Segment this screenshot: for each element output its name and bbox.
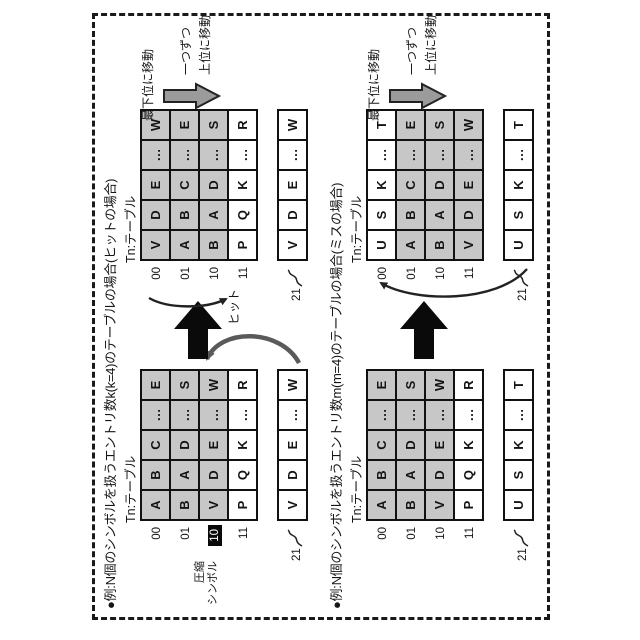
table-name-label: Tn:テーブル <box>120 456 139 523</box>
leader-squiggle-icon <box>513 529 529 547</box>
table-cell: P <box>229 491 256 519</box>
row-label-text: 00 <box>377 525 389 542</box>
row-label: 01 <box>171 525 200 542</box>
register-cell: … <box>505 401 532 429</box>
register-cell: … <box>505 141 532 169</box>
register-cell: D <box>279 461 306 489</box>
move-to-lowest-label: 最下位に移動 <box>139 49 156 121</box>
table-cell: V <box>142 231 169 259</box>
table-cell: B <box>200 231 227 259</box>
table-cell: … <box>455 401 482 429</box>
table-cell: … <box>142 141 169 169</box>
move-up-line2: 上位に移動 <box>196 15 215 75</box>
row-label-text: 00 <box>151 525 163 542</box>
move-to-lowest-label: 最下位に移動 <box>365 49 382 121</box>
register-ref-label: 21 <box>513 529 529 561</box>
table-cell: … <box>368 141 395 169</box>
figure-frame: ●例:N個のシンボルを扱うエントリ数k(k=4)のテーブルの場合(ヒットの場合)… <box>92 13 550 620</box>
register-cell: U <box>505 231 532 259</box>
move-up-line2: 上位に移動 <box>422 15 441 75</box>
row-label: 11 <box>229 265 258 281</box>
table-cell: V <box>426 491 453 519</box>
table-cell: D <box>397 431 424 459</box>
row-label: 01 <box>397 265 426 282</box>
register-cell: T <box>505 371 532 399</box>
table-cell: A <box>171 231 198 259</box>
register-ref-label: 21 <box>287 529 303 561</box>
row-label-text: 11 <box>238 525 250 541</box>
register-cell: D <box>279 201 306 229</box>
table-cell: D <box>200 461 227 489</box>
patent-figure-page: { "colors": { "shaded_cell": "#c7c7c7", … <box>0 0 640 640</box>
table-cell: S <box>397 371 424 399</box>
row-label-text: 00 <box>151 265 163 282</box>
table-cell: C <box>397 171 424 199</box>
row-label-text: 10 <box>435 265 447 282</box>
row-label-text: 11 <box>464 525 476 541</box>
symbol-register-before: U S K … T <box>503 369 534 521</box>
table-cell: E <box>455 171 482 199</box>
table-cell: Q <box>229 461 256 489</box>
register-cell: W <box>279 371 306 399</box>
row-label: 10 <box>426 525 455 542</box>
row-label: 01 <box>397 525 426 542</box>
row-label: 00 <box>142 525 171 542</box>
table-cell: B <box>426 231 453 259</box>
table-cell: A <box>171 461 198 489</box>
table-cell: B <box>397 491 424 519</box>
leader-squiggle-icon <box>287 529 303 547</box>
table-cell: V <box>455 231 482 259</box>
compressed-symbol-line1: 圧縮 <box>194 561 207 613</box>
table-cell: S <box>171 371 198 399</box>
table-cell: K <box>229 431 256 459</box>
register-cell: … <box>279 141 306 169</box>
table-cell: … <box>455 141 482 169</box>
table-cell: A <box>397 461 424 489</box>
compressed-symbol-label: 圧縮 シンボル <box>194 561 220 613</box>
move-up-label: 一つずつ 上位に移動 <box>403 15 441 75</box>
table-cell: D <box>455 201 482 229</box>
table-cell: D <box>426 461 453 489</box>
table-cell: K <box>229 171 256 199</box>
move-down-arrow-icon <box>163 83 221 109</box>
table-cell: W <box>455 111 482 139</box>
table-cell: … <box>368 401 395 429</box>
symbol-register-after: U S K … T <box>503 109 534 261</box>
row-label: 11 <box>229 525 258 541</box>
table-cell: … <box>200 141 227 169</box>
table-cell: E <box>200 431 227 459</box>
table-cell: D <box>171 431 198 459</box>
transform-arrow-icon <box>397 301 451 359</box>
symbol-register-after: V D E … W <box>277 109 308 261</box>
table-cell: C <box>142 431 169 459</box>
table-cell: A <box>426 201 453 229</box>
register-cell: V <box>279 491 306 519</box>
table-cell: … <box>171 141 198 169</box>
register-cell: U <box>505 491 532 519</box>
table-cell: … <box>200 401 227 429</box>
table-cell: … <box>397 401 424 429</box>
table-cell: B <box>368 461 395 489</box>
symbol-table-after: U S K … T A B C … E B A D … S V D E … W <box>366 109 484 261</box>
register-ref-number: 21 <box>291 288 303 301</box>
case-miss: ●例:N個のシンボルを扱うエントリ数m(m=4)のテーブルの場合(ミスの場合) … <box>321 16 547 617</box>
row-label-column: 00 01 10 11 <box>142 525 258 559</box>
row-label-column: 00 01 10 11 <box>368 265 484 299</box>
register-ref-number: 21 <box>517 548 529 561</box>
table-cell: R <box>455 371 482 399</box>
row-label-text: 01 <box>406 265 418 282</box>
table-cell: W <box>426 371 453 399</box>
table-cell: B <box>171 491 198 519</box>
row-label-text: 11 <box>238 265 250 281</box>
table-name-label: Tn:テーブル <box>346 196 365 263</box>
table-cell: E <box>171 111 198 139</box>
register-cell: E <box>279 431 306 459</box>
table-cell: … <box>426 141 453 169</box>
table-cell: E <box>142 371 169 399</box>
case-hit: ●例:N個のシンボルを扱うエントリ数k(k=4)のテーブルの場合(ヒットの場合)… <box>95 16 321 617</box>
table-cell: B <box>171 201 198 229</box>
table-cell: E <box>426 431 453 459</box>
row-label-column: 00 01 10 11 <box>368 525 484 559</box>
table-cell: D <box>142 201 169 229</box>
table-cell: C <box>368 431 395 459</box>
row-label-text: 11 <box>464 265 476 281</box>
table-cell: K <box>368 171 395 199</box>
table-cell: A <box>200 201 227 229</box>
move-up-line1: 一つずつ <box>177 15 196 75</box>
row-label-text: 01 <box>406 525 418 542</box>
row-label: 10 <box>200 265 229 282</box>
table-cell: R <box>229 111 256 139</box>
register-cell: K <box>505 431 532 459</box>
row-label: 01 <box>171 265 200 282</box>
table-cell: V <box>200 491 227 519</box>
table-cell: … <box>229 401 256 429</box>
table-cell: … <box>171 401 198 429</box>
register-cell: T <box>505 111 532 139</box>
register-cell: S <box>505 201 532 229</box>
table-name-label: Tn:テーブル <box>346 456 365 523</box>
row-label: 00 <box>368 525 397 542</box>
leader-squiggle-icon <box>513 269 529 287</box>
move-up-line1: 一つずつ <box>403 15 422 75</box>
register-cell: E <box>279 171 306 199</box>
table-name-label: Tn:テーブル <box>120 196 139 263</box>
table-cell: U <box>368 231 395 259</box>
table-cell: D <box>200 171 227 199</box>
row-label: 00 <box>368 265 397 282</box>
row-label-text: 10 <box>435 525 447 542</box>
row-label-text: 10 <box>209 265 221 282</box>
table-cell: S <box>368 201 395 229</box>
move-down-arrow-icon <box>389 83 447 109</box>
case-title: ●例:N個のシンボルを扱うエントリ数m(m=4)のテーブルの場合(ミスの場合) <box>326 183 345 609</box>
register-cell: V <box>279 231 306 259</box>
symbol-table-before: A B C … E B A D … S V D E … W P Q K … R <box>366 369 484 521</box>
table-cell: S <box>426 111 453 139</box>
table-cell: B <box>142 461 169 489</box>
table-cell: A <box>142 491 169 519</box>
row-label-text: 00 <box>377 265 389 282</box>
table-cell: W <box>200 371 227 399</box>
rotated-figure-wrap: ●例:N個のシンボルを扱うエントリ数k(k=4)のテーブルの場合(ヒットの場合)… <box>92 13 550 620</box>
table-cell: A <box>368 491 395 519</box>
register-ref-label: 21 <box>287 269 303 301</box>
table-cell: D <box>426 171 453 199</box>
row-label-text: 01 <box>180 525 192 542</box>
move-up-label: 一つずつ 上位に移動 <box>177 15 215 75</box>
table-cell: … <box>142 401 169 429</box>
row-label: 11 <box>455 525 484 541</box>
table-cell: S <box>200 111 227 139</box>
row-label-text: 01 <box>180 265 192 282</box>
table-cell: Q <box>455 461 482 489</box>
symbol-register-before: V D E … W <box>277 369 308 521</box>
symbol-table-after: V D E … W A B C … E B A D … S P Q K … R <box>140 109 258 261</box>
register-ref-label: 21 <box>513 269 529 301</box>
register-cell: S <box>505 461 532 489</box>
table-cell: K <box>455 431 482 459</box>
table-cell: E <box>397 111 424 139</box>
table-cell: … <box>229 141 256 169</box>
table-cell: … <box>426 401 453 429</box>
row-label-text: 10 <box>208 525 222 546</box>
table-cell: R <box>229 371 256 399</box>
row-label-highlighted: 10 <box>200 525 229 546</box>
row-label-column: 00 01 10 11 <box>142 265 258 299</box>
row-label: 10 <box>426 265 455 282</box>
leader-squiggle-icon <box>287 269 303 287</box>
table-cell: A <box>397 231 424 259</box>
register-ref-number: 21 <box>291 548 303 561</box>
register-ref-number: 21 <box>517 288 529 301</box>
table-cell: C <box>171 171 198 199</box>
table-cell: B <box>397 201 424 229</box>
row-label: 00 <box>142 265 171 282</box>
register-cell: W <box>279 111 306 139</box>
table-cell: … <box>397 141 424 169</box>
register-cell: … <box>279 401 306 429</box>
compressed-symbol-line2: シンボル <box>207 561 220 613</box>
table-cell: E <box>368 371 395 399</box>
table-cell: Q <box>229 201 256 229</box>
table-cell: E <box>142 171 169 199</box>
symbol-table-before: A B C … E B A D … S V D E … W P Q K … R <box>140 369 258 521</box>
row-label: 11 <box>455 265 484 281</box>
table-cell: P <box>455 491 482 519</box>
register-cell: K <box>505 171 532 199</box>
table-cell: P <box>229 231 256 259</box>
case-title: ●例:N個のシンボルを扱うエントリ数k(k=4)のテーブルの場合(ヒットの場合) <box>100 179 119 609</box>
